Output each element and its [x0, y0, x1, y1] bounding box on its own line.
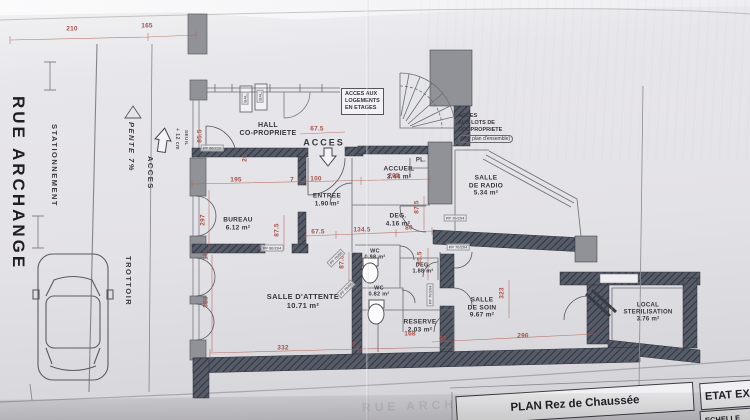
dimension-label: 85.5 [197, 129, 204, 142]
slope-triangle-icon [125, 106, 141, 118]
annotation-acces-logements: ACCES AUX LOGEMENTS EN ETAGES [341, 88, 384, 115]
plan-linework [0, 0, 750, 420]
left-facade-walls [188, 14, 207, 360]
parking-label: STATIONNEMENT [50, 124, 59, 207]
dimension-label: 67.5 [311, 229, 324, 236]
photographed-floor-plan: RUE ARCHANGE STATIONNEMENT TROTTOIR PENT… [0, 0, 750, 420]
interior-access-arrow-icon [320, 148, 336, 166]
paper-fold [0, 9, 750, 20]
car-illustration [33, 254, 113, 380]
room-label-wc-2: WC 0.82 m² [368, 286, 389, 299]
room-label-placard: PL. [416, 157, 426, 164]
street-access-label: ACCES [146, 156, 155, 190]
door-size-label: PP 80/210 [201, 145, 224, 152]
dimension-label: 165 [141, 23, 152, 30]
dimension-label: 20 [242, 154, 249, 162]
dimension-label: 15 [203, 252, 210, 260]
paper-vertical-fold [366, 0, 369, 420]
room-label-radio: SALLE DE RADIO 5.34 m² [469, 175, 503, 198]
dimension-label: 80 [405, 225, 413, 232]
dimension-label: 67.5 [310, 126, 323, 133]
dimension-label: 61 [439, 336, 447, 343]
threshold-height-label: + 12 cm [174, 128, 180, 150]
street-lines [30, 44, 152, 400]
door-size-label: PP 70/204 [447, 244, 470, 251]
dimension-label: 7 [352, 342, 356, 349]
slope-label: PENTE 7% [127, 122, 136, 172]
street-name: RUE ARCHANGE [8, 96, 28, 270]
dimension-label: 323 [203, 296, 210, 307]
room-label-soin: SALLE DE SOIN 9.67 m² [468, 297, 497, 320]
room-label-hall: HALL CO-PROPRIETE [240, 122, 297, 139]
annotation-acces-lots: ACCES AUX LOTS DE COOPROPRIETE(voir plan… [458, 113, 513, 143]
dimension-label: 297 [200, 214, 207, 225]
sidewalk-label: TROTTOIR [124, 256, 133, 306]
threshold-label: SEUIL [184, 130, 189, 146]
dimension-label: 168 [404, 331, 415, 338]
door-size-label: PP 70/204 [444, 215, 467, 222]
room-label-entree: ENTREE 1.90 m² [313, 192, 341, 207]
dimension-label: 7 [290, 177, 294, 184]
dimension-label: 87.5 [414, 200, 421, 213]
room-label-bureau: BUREAU 6.12 m² [223, 216, 253, 231]
dimension-label: 195 [230, 177, 241, 184]
dimension-label: 323 [499, 287, 506, 298]
dimension-label: 85.5 [417, 251, 424, 264]
dimension-label: 210 [66, 26, 77, 33]
dimension-label: 87.5 [274, 223, 281, 236]
door-arcs [196, 126, 588, 340]
door-size-label: BAL. [242, 91, 249, 104]
door-size-label: PP 70/204 [427, 284, 434, 307]
dimension-label: 332 [277, 345, 288, 352]
interior-walls [192, 50, 700, 398]
interior-access-label: ACCES [303, 138, 345, 149]
door-size-label: BAL. [257, 89, 264, 102]
door-size-label: PP 80/204 [261, 245, 284, 252]
dimension-label: 296 [517, 333, 528, 340]
dimension-label: 100 [310, 176, 321, 183]
annotation-subtext: (voir plan d'ensemble) [458, 135, 513, 143]
room-label-local: LOCAL STERILISATION 3.76 m² [623, 302, 672, 323]
courtyard-facade [207, 84, 340, 118]
dimension-label: 205 [388, 173, 399, 180]
room-label-attente: SALLE D'ATTENTE 10.71 m² [267, 293, 339, 311]
